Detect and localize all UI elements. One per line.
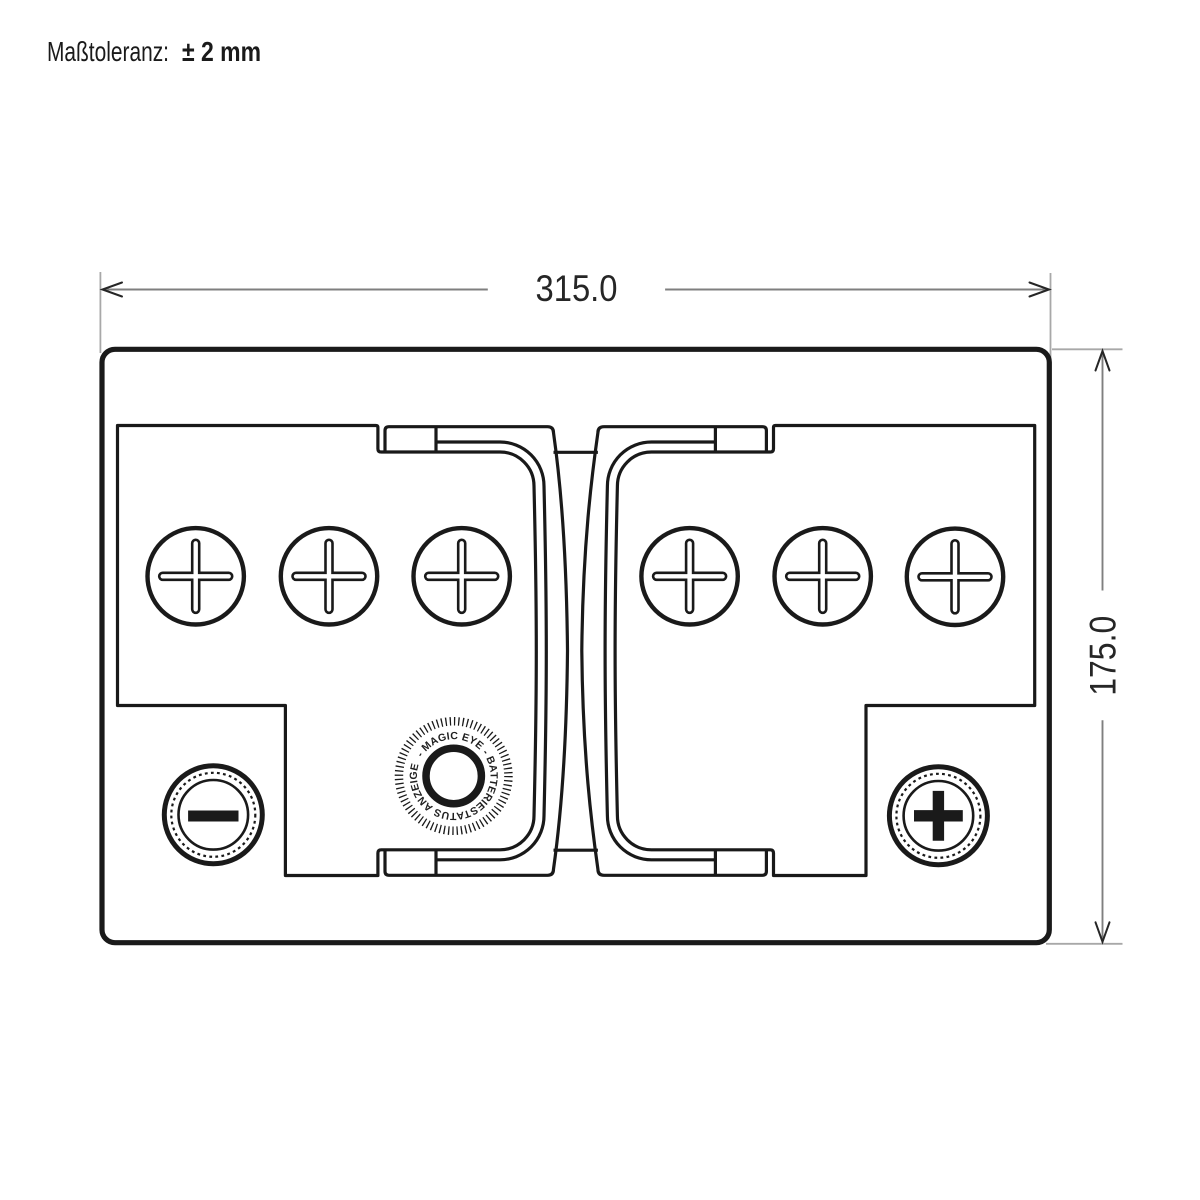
svg-text:175.0: 175.0: [1082, 616, 1124, 696]
svg-text:± 2 mm: ± 2 mm: [182, 36, 261, 67]
svg-text:315.0: 315.0: [536, 267, 618, 309]
svg-text:Maßtoleranz:: Maßtoleranz:: [47, 36, 169, 67]
